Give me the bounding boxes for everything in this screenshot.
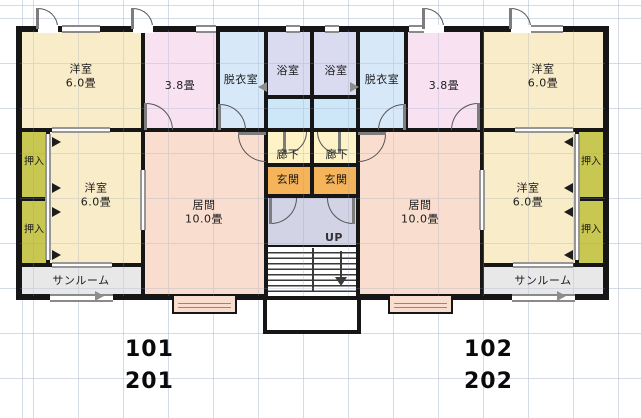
closet-arrow-icon — [564, 207, 573, 217]
room-wc-left — [266, 97, 312, 130]
room-label-entrance-right: 玄関 — [325, 173, 348, 187]
unit-label-201: 201 — [125, 369, 174, 394]
room-label-hallway-left: 廊下 — [277, 148, 300, 162]
closet-sliding-door-icon — [574, 134, 580, 260]
sliding-door-icon — [52, 262, 112, 268]
entrance-door-leaf — [269, 198, 272, 224]
staircase — [266, 247, 358, 296]
room-label-closet-left-1: 押入 — [24, 156, 44, 169]
closet-arrow-icon — [52, 207, 61, 217]
room-label-dressing-left: 脱衣室 — [224, 73, 259, 87]
door-leaf — [144, 103, 147, 130]
door-gap — [38, 25, 58, 33]
room-label-closet-right-2: 押入 — [581, 224, 601, 237]
closet-arrow-icon — [564, 250, 573, 260]
window-icon — [62, 25, 100, 33]
window-icon — [286, 25, 300, 33]
room-label-bath-right: 浴室 — [325, 64, 348, 78]
door-leaf — [477, 103, 480, 130]
room-label-western-6-bottom-right: 洋室6.0畳 — [513, 182, 544, 211]
closet-arrow-icon — [52, 137, 61, 147]
room-label-3-8-right: 3.8畳 — [429, 79, 460, 93]
closet-arrow-icon — [564, 183, 573, 193]
room-label-dressing-right: 脱衣室 — [365, 73, 400, 87]
door-leaf — [36, 8, 39, 29]
slide-arrow-icon — [557, 291, 566, 301]
window-icon — [196, 25, 216, 33]
room-label-western-6-bottom-left: 洋室6.0畳 — [81, 182, 112, 211]
door-leaf — [238, 132, 266, 135]
door-leaf — [403, 104, 406, 130]
room-label-closet-right-1: 押入 — [581, 156, 601, 169]
sliding-door-icon — [140, 170, 146, 230]
door-leaf — [358, 132, 386, 135]
unit-label-101: 101 — [125, 337, 174, 362]
door-gap — [133, 25, 153, 33]
entrance-porch — [263, 300, 361, 334]
stair-direction-arrow — [340, 251, 342, 277]
door-gap — [511, 25, 531, 33]
room-label-western-6-top-right: 洋室6.0畳 — [528, 63, 559, 92]
closet-arrow-icon — [564, 137, 573, 147]
room-label-western-6-top-left: 洋室6.0畳 — [66, 63, 97, 92]
stair-center-line — [312, 248, 314, 292]
room-label-living-left: 居間10.0畳 — [185, 199, 223, 228]
window-icon — [178, 303, 231, 308]
room-label-3-8-left: 3.8畳 — [165, 79, 196, 93]
entrance-door-leaf — [352, 198, 355, 224]
closet-sliding-door-icon — [45, 134, 51, 260]
room-label-closet-left-2: 押入 — [24, 224, 44, 237]
room-label-entrance-left: 玄関 — [277, 173, 300, 187]
slide-arrow-icon — [95, 291, 104, 301]
closet-arrow-icon — [52, 183, 61, 193]
sliding-door-icon — [513, 262, 573, 268]
room-label-sunroom-right: サンルーム — [514, 274, 571, 288]
door-leaf — [509, 8, 512, 29]
door-leaf — [422, 8, 425, 29]
closet-arrow-icon — [52, 250, 61, 260]
door-leaf — [218, 104, 221, 130]
bay-window-right — [388, 296, 453, 314]
bath-door-icon — [350, 82, 359, 92]
sliding-door-icon — [515, 127, 573, 133]
unit-label-202: 202 — [464, 369, 513, 394]
door-gap — [424, 25, 444, 33]
room-label-sunroom-left: サンルーム — [52, 274, 109, 288]
sliding-door-icon — [52, 127, 110, 133]
room-label-hallway-right: 廊下 — [326, 148, 349, 162]
floor-plan-canvas: 洋室6.0畳 3.8畳 脱衣室 浴室 廊下 玄関 押入 押入 洋室6.0畳 居間… — [0, 0, 641, 418]
bay-window-left — [172, 296, 237, 314]
stair-up-label: UP — [325, 231, 343, 245]
bath-door-icon — [258, 82, 267, 92]
room-wc-right — [312, 97, 358, 130]
unit-label-102: 102 — [464, 337, 513, 362]
room-label-living-right: 居間10.0畳 — [401, 199, 439, 228]
door-leaf — [131, 8, 134, 29]
stair-arrow-head-icon — [335, 277, 347, 286]
window-icon — [325, 25, 339, 33]
room-label-bath-left: 浴室 — [277, 64, 300, 78]
sliding-door-icon — [479, 170, 485, 230]
window-icon — [394, 303, 447, 308]
